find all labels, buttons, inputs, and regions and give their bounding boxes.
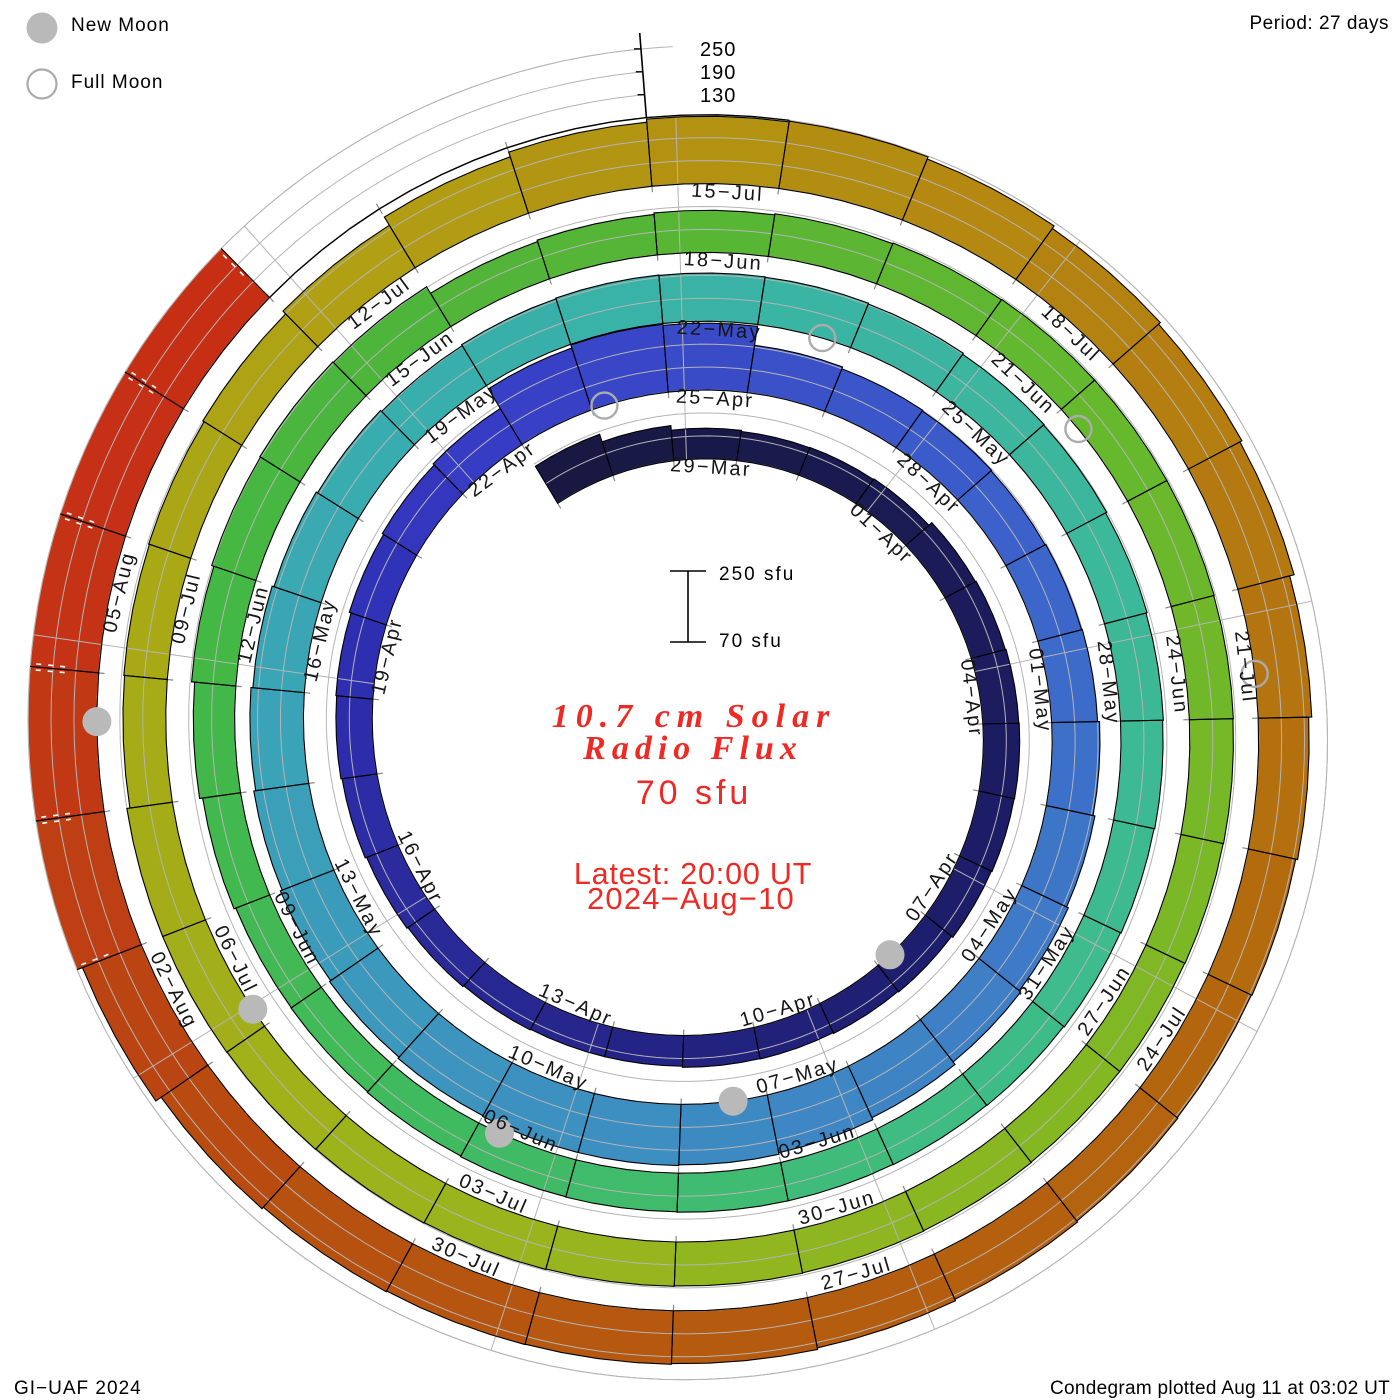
svg-text:2024−Aug−10: 2024−Aug−10 [587, 881, 795, 916]
svg-text:250 sfu: 250 sfu [719, 564, 795, 585]
svg-text:New Moon: New Moon [71, 15, 170, 36]
svg-text:GI−UAF 2024: GI−UAF 2024 [14, 1378, 142, 1399]
svg-text:70 sfu: 70 sfu [719, 631, 783, 652]
svg-text:15−Jul: 15−Jul [691, 179, 765, 205]
svg-text:70 sfu: 70 sfu [636, 774, 753, 812]
svg-text:130: 130 [700, 85, 736, 107]
svg-text:Condegram plotted Aug 11 at 03: Condegram plotted Aug 11 at 03:02 UT [1050, 1378, 1390, 1399]
svg-text:190: 190 [700, 62, 736, 84]
svg-text:250: 250 [700, 39, 736, 61]
svg-text:Full Moon: Full Moon [71, 72, 163, 93]
svg-text:Radio Flux: Radio Flux [582, 730, 803, 767]
svg-text:Period: 27 days: Period: 27 days [1249, 13, 1389, 34]
